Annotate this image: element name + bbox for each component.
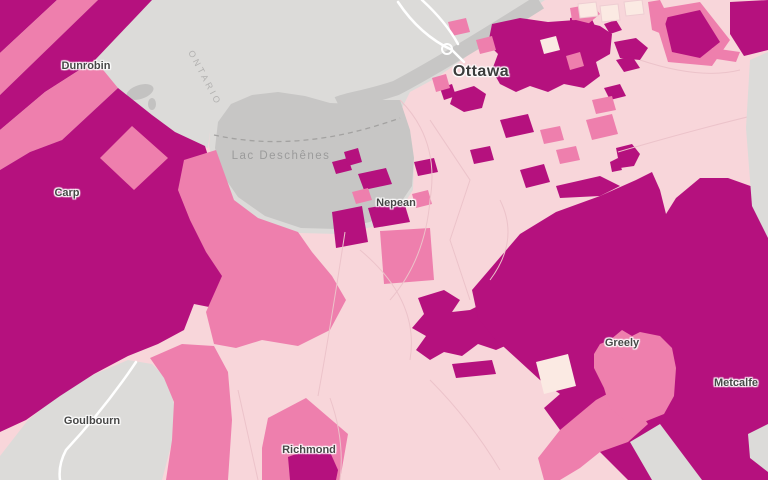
ottawa-core-region	[488, 18, 612, 92]
map-canvas[interactable]	[0, 0, 768, 480]
map-viewport[interactable]: Ottawa Dunrobin Carp Nepean Goulbourn Ri…	[0, 0, 768, 480]
small-lake-2	[148, 98, 156, 110]
